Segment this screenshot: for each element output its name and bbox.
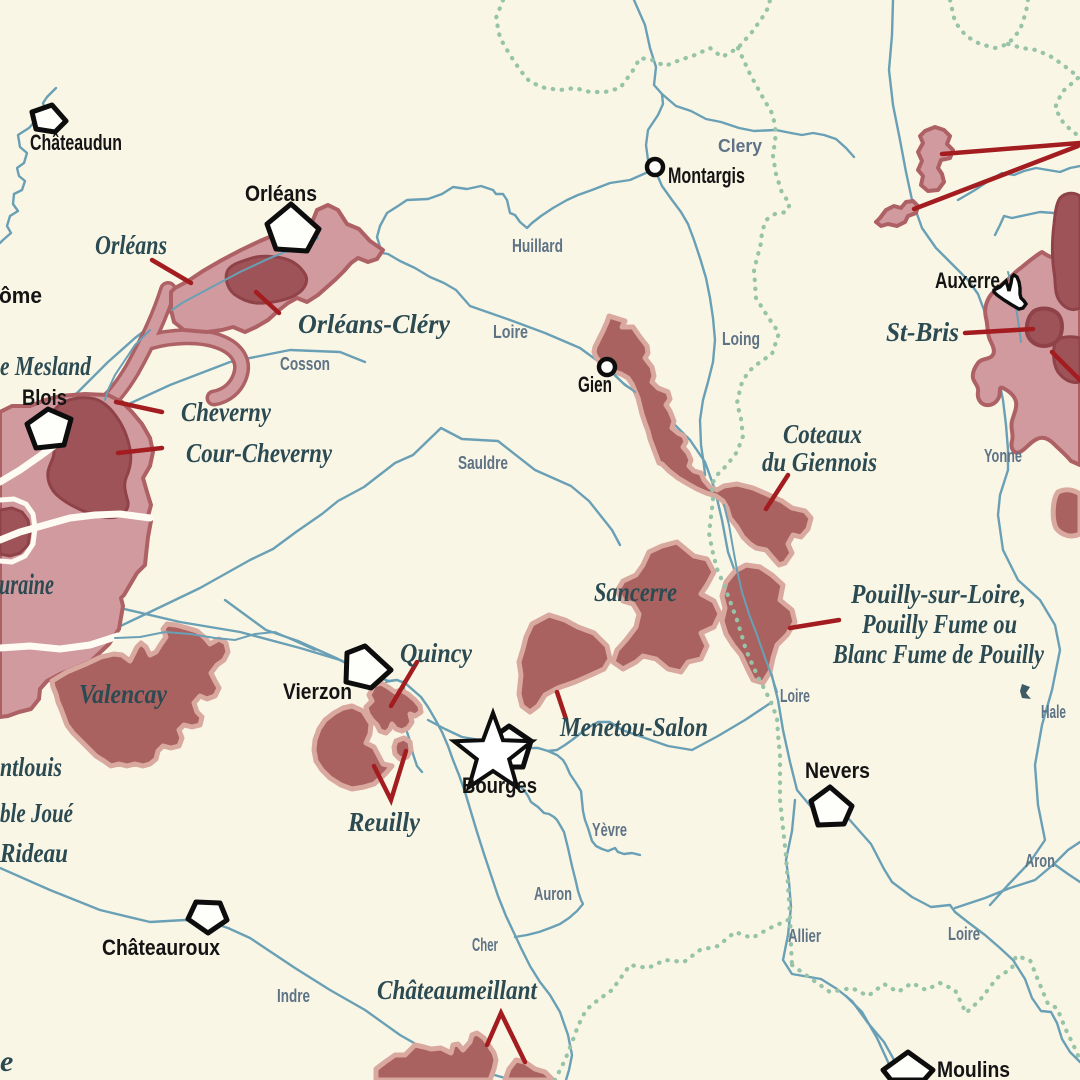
svg-text:Yèvre: Yèvre: [592, 820, 627, 840]
svg-text:Auron: Auron: [534, 884, 572, 904]
svg-text:St-Bris: St-Bris: [886, 317, 959, 347]
svg-text:uraine: uraine: [0, 568, 54, 601]
svg-text:Blois: Blois: [22, 385, 67, 410]
svg-text:Montargis: Montargis: [668, 163, 745, 188]
svg-text:ntlouis: ntlouis: [0, 752, 62, 782]
svg-text:Cheverny: Cheverny: [181, 397, 272, 427]
svg-text:Nevers: Nevers: [805, 758, 870, 783]
svg-text:Valencay: Valencay: [79, 679, 168, 709]
svg-text:ôme: ôme: [0, 283, 42, 308]
svg-text:Sancerre: Sancerre: [594, 577, 677, 607]
svg-text:Menetou-Salon: Menetou-Salon: [559, 712, 708, 742]
svg-text:Yonne: Yonne: [984, 446, 1022, 466]
svg-text:Châteauroux: Châteauroux: [102, 935, 221, 960]
svg-text:Huillard: Huillard: [512, 236, 563, 256]
svg-text:Orléans-Cléry: Orléans-Cléry: [298, 309, 451, 339]
svg-text:Reuilly: Reuilly: [347, 807, 421, 837]
svg-text:ble Joué: ble Joué: [0, 798, 74, 828]
svg-text:Orléans: Orléans: [95, 230, 167, 260]
svg-text:Châteaumeillant: Châteaumeillant: [377, 975, 538, 1005]
svg-text:Allier: Allier: [788, 926, 821, 946]
svg-text:Cosson: Cosson: [280, 354, 330, 374]
svg-text:e: e: [0, 1045, 13, 1078]
svg-text:Loire: Loire: [780, 686, 810, 706]
svg-text:Blanc Fume de Pouilly: Blanc Fume de Pouilly: [832, 639, 1045, 669]
svg-text:Bourges: Bourges: [462, 773, 537, 798]
svg-text:Auxerre: Auxerre: [935, 268, 1000, 293]
svg-text:Moulins: Moulins: [937, 1057, 1010, 1080]
svg-text:Châteaudun: Châteaudun: [30, 130, 122, 155]
svg-text:Pouilly-sur-Loire,: Pouilly-sur-Loire,: [850, 579, 1026, 609]
svg-text:Orléans: Orléans: [245, 181, 317, 206]
svg-text:Loing: Loing: [722, 329, 760, 349]
svg-text:Coteaux: Coteaux: [783, 419, 862, 449]
svg-text:Loire: Loire: [493, 322, 528, 342]
svg-text:Hale: Hale: [1041, 702, 1066, 722]
svg-text:Gien: Gien: [578, 372, 612, 397]
svg-text:du Giennois: du Giennois: [762, 447, 877, 477]
svg-text:e Mesland: e Mesland: [0, 351, 91, 381]
svg-text:Indre: Indre: [277, 986, 310, 1006]
svg-text:Cher: Cher: [472, 935, 498, 955]
svg-text:Pouilly Fume ou: Pouilly Fume ou: [861, 609, 1017, 639]
svg-text:Clery: Clery: [718, 136, 762, 156]
svg-text:Aron: Aron: [1025, 851, 1055, 871]
svg-text:Rideau: Rideau: [0, 838, 68, 868]
svg-text:Cour-Cheverny: Cour-Cheverny: [186, 438, 333, 468]
svg-text:Sauldre: Sauldre: [458, 453, 508, 473]
svg-text:Quincy: Quincy: [400, 638, 473, 668]
svg-text:Loire: Loire: [948, 924, 980, 944]
svg-text:Vierzon: Vierzon: [283, 679, 352, 704]
